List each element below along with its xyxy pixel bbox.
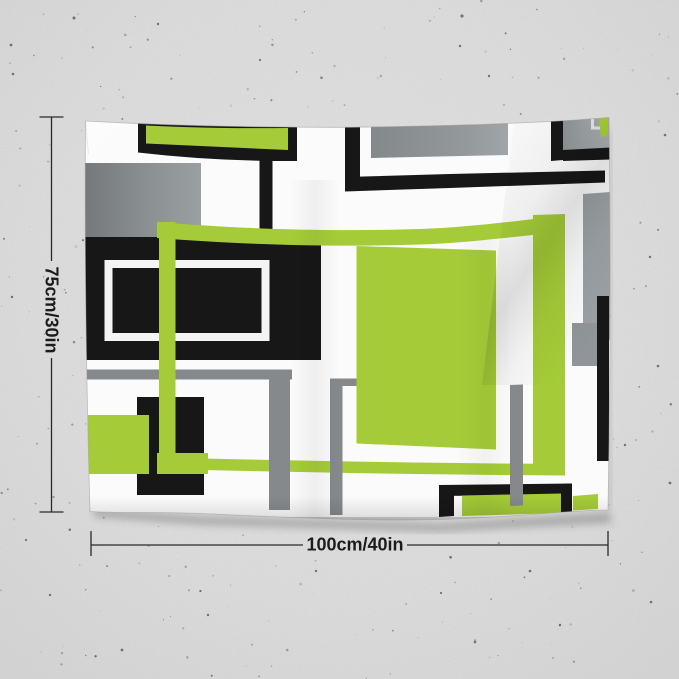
svg-text:75cm/30in: 75cm/30in — [42, 266, 62, 353]
svg-text:100cm/40in: 100cm/40in — [306, 535, 403, 555]
